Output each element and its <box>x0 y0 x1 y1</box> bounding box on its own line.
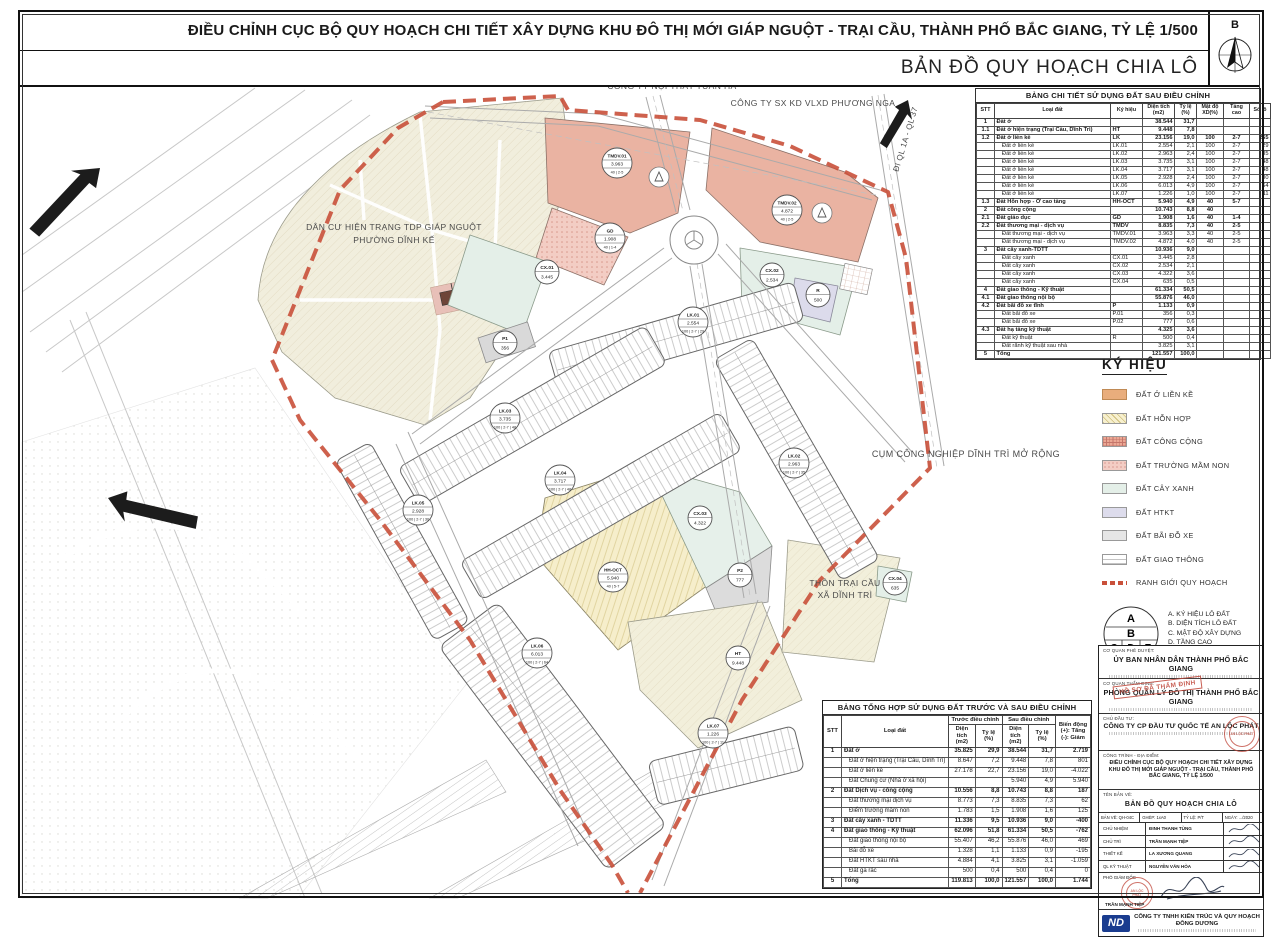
svg-text:40 | 2-5: 40 | 2-5 <box>611 171 624 175</box>
legend-item-htkt: ĐẤT HTKT <box>1102 501 1262 525</box>
legend-label: ĐẤT HỖN HỢP <box>1136 414 1191 423</box>
map-label: THÔN TRẠI CẦU <box>809 578 880 588</box>
svg-text:4.322: 4.322 <box>694 520 706 526</box>
svg-text:3.963: 3.963 <box>611 162 623 168</box>
svg-text:LK.04: LK.04 <box>554 471 567 476</box>
detail-table-header: STT Loại đất Ký hiệu Diện tích (m2) Tỷ l… <box>977 104 1271 119</box>
lot-marker-p2: P2777 <box>728 563 752 587</box>
approve-label: CƠ QUAN PHÊ DUYỆT: <box>1103 648 1259 653</box>
legend-swatch-cayxanh <box>1102 483 1127 494</box>
roundabout <box>670 216 718 264</box>
lot-marker-lk-01: LK.012.554100 | 2-7 | 29 <box>678 307 708 337</box>
summary-table-row: Đất HTKT sau nhà4.8844,13.8253,1-1.059 <box>824 857 1091 867</box>
lot-marker-cx-02: CX.022.534 <box>760 263 784 287</box>
detail-table-row: 1.1Đất ở hiện trạng (Trại Cầu, Dĩnh Trì)… <box>977 126 1271 134</box>
north-arrow: B <box>1208 12 1260 85</box>
svg-text:P2: P2 <box>737 568 743 574</box>
summary-table-row: Đất Chung cư (Nhà ở xã hội)5.9404,95.940 <box>824 777 1091 787</box>
svg-text:2.534: 2.534 <box>766 277 778 283</box>
detail-table-row: Đất cây xanhCX.034.3223,6 <box>977 270 1271 278</box>
drawing-label: TÊN BẢN VẼ: <box>1103 792 1259 797</box>
detail-table-row: Đất ở liền kềLK.012.5542,11002-729 <box>977 142 1271 150</box>
detail-table-row: Đất rãnh kỹ thuật sau nhà3.8253,1 <box>977 342 1271 350</box>
approve-agency: ỦY BAN NHÂN DÂN THÀNH PHỐ BẮC GIANG <box>1103 655 1259 673</box>
svg-text:6.013: 6.013 <box>531 652 543 658</box>
legend-swatch-lienke <box>1102 389 1127 400</box>
lot-marker-cx-03: CX.034.322 <box>688 506 712 530</box>
svg-text:B: B <box>1127 628 1135 640</box>
detail-table-row: Đất cây xanhCX.046350,5 <box>977 278 1271 286</box>
svg-text:40 | 5-7: 40 | 5-7 <box>607 585 620 589</box>
svg-text:LK.03: LK.03 <box>499 409 512 414</box>
summary-table-row: 5Tổng119.813100,0121.557100,01.744 <box>824 877 1091 887</box>
project-name: ĐIỀU CHỈNH CỤC BỘ QUY HOẠCH CHI TIẾT XÂY… <box>1103 760 1259 780</box>
lot-marker-tmdv-01: TMDV.013.96340 | 2-5 <box>602 148 632 178</box>
legend-swatch-congcong <box>1102 436 1127 447</box>
detail-table-row: Đất ở liền kềLK.066.0134,91002-764 <box>977 182 1271 190</box>
sheet-header: ĐIỀU CHỈNH CỤC BỘ QUY HOẠCH CHI TIẾT XÂY… <box>20 12 1260 87</box>
summary-table-row: Đất ga rác5000,45000,40 <box>824 867 1091 877</box>
legend-label: ĐẤT BÃI ĐỖ XE <box>1136 531 1194 540</box>
svg-text:100 | 2-7 | 64: 100 | 2-7 | 64 <box>526 661 548 665</box>
svg-text:5.940: 5.940 <box>607 576 619 582</box>
svg-text:3.717: 3.717 <box>554 479 566 485</box>
detail-table-row: 2.1Đất giáo dụcGD1.9081,6401-4 <box>977 214 1271 222</box>
detail-table-row: Đất kỹ thuậtR5000,4 <box>977 334 1271 342</box>
playground-icon <box>812 203 832 223</box>
drawing-name: BẢN ĐỒ QUY HOẠCH CHIA LÔ <box>1103 801 1259 808</box>
detail-table-row: 1Đất ở38.54431,7 <box>977 118 1271 126</box>
legend-item-honhop: ĐẤT HỖN HỢP <box>1102 407 1262 431</box>
svg-text:4.872: 4.872 <box>781 209 793 215</box>
svg-text:LK.05: LK.05 <box>412 501 425 506</box>
map-label: XÃ DĨNH TRÌ <box>818 590 873 600</box>
north-label: B <box>1231 19 1239 31</box>
legend-item-baidoxe: ĐẤT BÃI ĐỖ XE <box>1102 524 1262 548</box>
detail-table-row: Đất ở liền kềLK.043.7173,11002-748 <box>977 166 1271 174</box>
legend-swatch-mamnon <box>1102 460 1127 471</box>
role-row: CHỦ TRÌTRẦN MẠNH TIỆP <box>1099 836 1263 849</box>
svg-text:100 | 2-7 | 35: 100 | 2-7 | 35 <box>783 471 805 475</box>
svg-text:HT: HT <box>735 651 741 657</box>
legend-label: ĐẤT GIAO THÔNG <box>1136 555 1204 564</box>
detail-table-row: 4.3Đất hạ tầng kỹ thuật4.3253,6 <box>977 326 1271 334</box>
svg-text:CX.04: CX.04 <box>888 576 902 582</box>
detail-table-row: Đất ở liền kềLK.052.9282,41002-730 <box>977 174 1271 182</box>
summary-table-row: 4Đất giao thông - Kỹ thuật62.09651,861.3… <box>824 827 1091 837</box>
summary-table-row: Đất ở hiện trạng (Trại Cầu, Dĩnh Trì)8.6… <box>824 757 1091 767</box>
svg-text:777: 777 <box>736 577 744 583</box>
detail-table-row: 3Đất cây xanh-TDTT10.9369,0 <box>977 246 1271 254</box>
svg-text:100 | 2-7 | 11: 100 | 2-7 | 11 <box>702 741 724 745</box>
summary-table-row: Điểm trường mầm non1.7831,51.9081,6125 <box>824 807 1091 817</box>
svg-text:2.554: 2.554 <box>687 321 699 327</box>
svg-text:TMDV.02: TMDV.02 <box>778 201 797 206</box>
lot-marker-lk-07: LK.071.226100 | 2-7 | 11 <box>698 718 728 748</box>
role-row: THIẾT KẾLA XƯƠNG QUANG <box>1099 848 1263 861</box>
map-label: CÔNG TY SX KD VLXD PHƯƠNG NGA <box>731 98 896 108</box>
detail-table-row: 4Đất giao thông - Kỹ thuật61.33450,5 <box>977 286 1271 294</box>
design-company: ND CÔNG TY TNHH KIẾN TRÚC VÀ QUY HOẠCH Đ… <box>1099 910 1263 936</box>
svg-text:GD: GD <box>607 229 615 234</box>
director-signature <box>1157 877 1227 903</box>
svg-text:LK.01: LK.01 <box>687 313 700 318</box>
summary-table-title: BẢNG TỔNG HỢP SỬ DỤNG ĐẤT TRƯỚC VÀ SAU Đ… <box>823 701 1091 715</box>
svg-text:9.448: 9.448 <box>732 660 744 666</box>
legend-label: ĐẤT CÔNG CỘNG <box>1136 437 1203 446</box>
svg-text:2.963: 2.963 <box>788 462 800 468</box>
lot-marker-tmdv-02: TMDV.024.87240 | 2-5 <box>772 195 802 225</box>
legend-item-mamnon: ĐẤT TRƯỜNG MẦM NON <box>1102 454 1262 478</box>
svg-text:100 | 2-7 | 29: 100 | 2-7 | 29 <box>682 330 704 334</box>
summary-table-row: Đất thương mại dịch vụ8.7737,38.8357,362 <box>824 797 1091 807</box>
svg-text:40 | 1-4: 40 | 1-4 <box>604 246 617 250</box>
legend-swatch-giaothong <box>1102 554 1127 565</box>
legend-swatch-baidoxe <box>1102 530 1127 541</box>
svg-text:LK.06: LK.06 <box>531 644 544 649</box>
summary-table-row: Đất giao thông nội bộ55.40746,255.87646,… <box>824 837 1091 847</box>
svg-text:CX.02: CX.02 <box>765 268 779 274</box>
lot-marker-r: R500 <box>806 283 830 307</box>
svg-text:R: R <box>816 288 820 294</box>
svg-text:3.735: 3.735 <box>499 417 511 423</box>
company-logo: ND <box>1102 915 1130 932</box>
lot-marker-lk-03: LK.033.735100 | 2-7 | 48 <box>490 403 520 433</box>
legend-swatch-htkt <box>1102 507 1127 518</box>
detail-table-row: 4.1Đất giao thông nội bộ55.87646,0 <box>977 294 1271 302</box>
legend-label: ĐẤT CÂY XANH <box>1136 484 1194 493</box>
detail-table-row: Đất bãi đỗ xeP.027770,6 <box>977 318 1271 326</box>
svg-text:CX.01: CX.01 <box>540 265 554 271</box>
detail-table-row: Đất cây xanhCX.022.5342,1 <box>977 262 1271 270</box>
map-label: PHƯỜNG DĨNH KẾ <box>353 235 435 245</box>
lot-marker-hh-oct: HH-OCT5.94040 | 5-7 <box>598 562 628 592</box>
detail-table-row: Đất ở liền kềLK.022.9632,41002-735 <box>977 150 1271 158</box>
detail-table-row: 4.2Đất bãi đỗ xe tĩnhP1.1330,9 <box>977 302 1271 310</box>
playground-icon <box>649 167 669 187</box>
legend-label: ĐẤT HTKT <box>1136 508 1174 517</box>
svg-text:100 | 2-7 | 30: 100 | 2-7 | 30 <box>407 518 429 522</box>
detail-table-row: Đất thương mại - dịch vụTMDV.013.9633,34… <box>977 230 1271 238</box>
svg-text:LK.07: LK.07 <box>707 724 720 729</box>
legend-swatch-ranhgioi <box>1102 581 1127 585</box>
map-label: CỤM CÔNG NGHIỆP DĨNH TRÌ MỞ RỘNG <box>872 448 1060 459</box>
lot-marker-lk-06: LK.066.013100 | 2-7 | 64 <box>522 638 552 668</box>
legend-item-cayxanh: ĐẤT CÂY XANH <box>1102 477 1262 501</box>
svg-text:1.226: 1.226 <box>707 732 719 738</box>
detail-table-row: 1.2Đất ở liền kềLK23.15619,01002-7265 <box>977 134 1271 142</box>
director-name: TRẦN MẠNH TIỆP <box>1105 902 1144 907</box>
svg-text:A: A <box>1127 613 1135 625</box>
summary-table-header: STT Loại đất Trước điều chỉnh Sau điều c… <box>824 716 1091 748</box>
page-subtitle: BẢN ĐỒ QUY HOẠCH CHIA LÔ <box>20 51 1208 85</box>
legend-line: A. KÝ HIỆU LÔ ĐẤT <box>1168 610 1241 619</box>
legend-item-congcong: ĐẤT CÔNG CỘNG <box>1102 430 1262 454</box>
summary-table-row: Đất ở liền kề27.17822,723.15619,0-4.022 <box>824 767 1091 777</box>
svg-text:100 | 2-7 | 48: 100 | 2-7 | 48 <box>549 488 571 492</box>
svg-text:40 | 2-5: 40 | 2-5 <box>781 218 794 222</box>
svg-text:2.928: 2.928 <box>412 509 424 515</box>
lot-marker-ht: HT9.448 <box>726 646 750 670</box>
svg-text:3.445: 3.445 <box>541 274 553 280</box>
legend-label: ĐẤT TRƯỜNG MẦM NON <box>1136 461 1229 470</box>
role-row: CHỦ NHIỆMĐINH THANH TÙNG <box>1099 823 1263 836</box>
drawing-meta: BẢN VẼ: QH-04C GHÉP: 1xA0 TỶ LỆ: P/T NGÀ… <box>1099 813 1263 823</box>
detail-table-row: Đất bãi đỗ xeP.013560,3 <box>977 310 1271 318</box>
title-block: CƠ QUAN PHÊ DUYỆT: ỦY BAN NHÂN DÂN THÀNH… <box>1098 645 1264 937</box>
detail-table-row: Đất ở liền kềLK.033.7353,11002-748 <box>977 158 1271 166</box>
summary-land-use-table: BẢNG TỔNG HỢP SỬ DỤNG ĐẤT TRƯỚC VÀ SAU Đ… <box>822 700 1092 889</box>
svg-text:100 | 2-7 | 48: 100 | 2-7 | 48 <box>494 426 516 430</box>
detail-table-row: 1.3Đất Hỗn hợp - Ở cao tầngHH-OCT5.9404,… <box>977 198 1271 206</box>
planning-map-sheet: { "header": { "title": "ĐIỀU CHỈNH CỤC B… <box>0 0 1280 906</box>
investor-stamp: AN LỘC PHÁT <box>1224 716 1260 752</box>
detail-land-use-table: BẢNG CHI TIẾT SỬ DỤNG ĐẤT SAU ĐIỀU CHỈNH… <box>975 88 1261 360</box>
lot-marker-cx-04: CX.04635 <box>883 571 907 595</box>
legend-item-giaothong: ĐẤT GIAO THÔNG <box>1102 548 1262 572</box>
detail-table-row: Đất ở liền kềLK.071.2261,01002-711 <box>977 190 1271 198</box>
detail-table-row: Đất thương mại - dịch vụTMDV.024.8724,04… <box>977 238 1271 246</box>
legend-item-ranhgioi: RANH GIỚI QUY HOẠCH <box>1102 571 1262 595</box>
lot-marker-p1: P1356 <box>493 331 517 355</box>
svg-text:635: 635 <box>891 585 899 591</box>
legend-title: KÝ HIỆU <box>1102 357 1167 375</box>
svg-text:LK.02: LK.02 <box>788 454 801 459</box>
map-label: DÂN CƯ HIỆN TRẠNG TDP GIÁP NGUỘT <box>306 222 482 232</box>
summary-table-row: Bãi đỗ xe1.3281,11.1330,9-195 <box>824 847 1091 857</box>
lot-marker-lk-05: LK.052.928100 | 2-7 | 30 <box>403 495 433 525</box>
summary-table-row: 2Đất Dịch vụ - công cộng10.5568,810.7438… <box>824 787 1091 797</box>
legend-line: C. MẬT ĐỘ XÂY DỰNG <box>1168 629 1241 638</box>
svg-text:HH-OCT: HH-OCT <box>604 568 622 573</box>
lot-marker-lk-04: LK.043.717100 | 2-7 | 48 <box>545 465 575 495</box>
svg-text:CX.03: CX.03 <box>693 511 707 517</box>
director-signature-area: PHÓ GIÁM ĐỐC AN LỘC PHÁT TRẦN MẠNH TIỆP <box>1099 873 1263 910</box>
legend-line: B. DIỆN TÍCH LÔ ĐẤT <box>1168 619 1241 628</box>
summary-table-row: 3Đất cây xanh - TDTT11.3369,510.9369,0-4… <box>824 817 1091 827</box>
detail-table-title: BẢNG CHI TIẾT SỬ DỤNG ĐẤT SAU ĐIỀU CHỈNH <box>976 89 1260 103</box>
legend-swatch-honhop <box>1102 413 1127 424</box>
detail-table-row: 2.2Đất thương mại - dịch vụTMDV8.8357,34… <box>977 222 1271 230</box>
svg-text:TMDV.01: TMDV.01 <box>608 154 627 159</box>
legend-label: ĐẤT Ở LIỀN KỀ <box>1136 390 1193 399</box>
svg-text:P1: P1 <box>502 336 508 342</box>
detail-table-row: Đất cây xanhCX.013.4452,8 <box>977 254 1271 262</box>
svg-text:356: 356 <box>501 345 509 351</box>
detail-table-row: 2Đất công cộng10.7438,840 <box>977 206 1271 214</box>
lot-marker-cx-01: CX.013.445 <box>535 260 559 284</box>
company-name: CÔNG TY TNHH KIẾN TRÚC VÀ QUY HOẠCH ĐÔNG… <box>1134 914 1260 928</box>
legend-item-lienke: ĐẤT Ở LIỀN KỀ <box>1102 383 1262 407</box>
summary-table-row: 1Đất ở35.82529,938.54431,72.719 <box>824 747 1091 757</box>
svg-text:1.908: 1.908 <box>604 237 616 243</box>
lot-marker-gd: GD1.90840 | 1-4 <box>595 223 625 253</box>
project-label: CÔNG TRÌNH - ĐỊA ĐIỂM: <box>1103 753 1259 758</box>
legend-label: RANH GIỚI QUY HOẠCH <box>1136 578 1228 587</box>
page-title: ĐIỀU CHỈNH CỤC BỘ QUY HOẠCH CHI TIẾT XÂY… <box>20 12 1208 51</box>
svg-text:500: 500 <box>814 297 822 303</box>
role-row: QL KỸ THUẬTNGUYỄN VĂN HÒA <box>1099 861 1263 874</box>
lot-marker-lk-02: LK.022.963100 | 2-7 | 35 <box>779 448 809 478</box>
